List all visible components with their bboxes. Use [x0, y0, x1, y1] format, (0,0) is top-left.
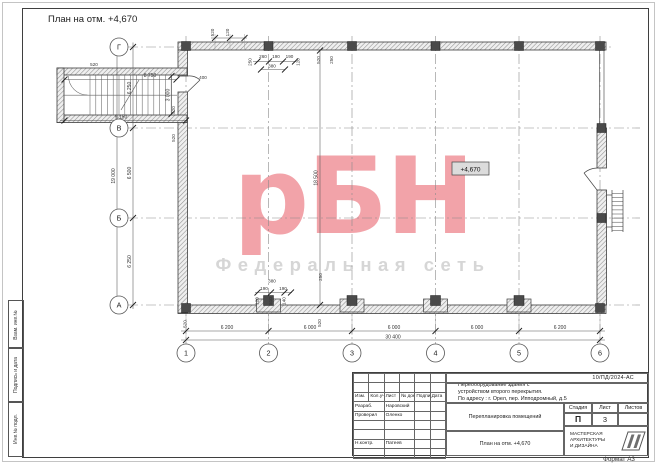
side-field-label: Взам. инв.№	[13, 310, 19, 340]
signer-name: Наровский	[384, 402, 415, 411]
col-list: Лист	[384, 392, 399, 401]
side-field-inv: Инв.№ подл.	[8, 401, 24, 457]
stage-header: Стадия	[564, 403, 592, 413]
drawing-sheet: План на отм. +4,670 рБН Федеральная сеть…	[0, 0, 658, 465]
format-label: Формат А3	[583, 456, 655, 463]
watermark-tagline: Федеральная сеть	[175, 254, 531, 276]
doc-number: 10/ПД/2024-АС	[446, 373, 649, 383]
signer-role: Проверил	[354, 411, 385, 420]
col-koluch: Кол.уч	[369, 392, 384, 401]
company-cell: МАСТЕРСКАЯ АРХИТЕКТУРЫ И ДИЗАЙНА	[564, 426, 649, 456]
watermark-logo: рБН	[175, 146, 531, 248]
sheet-value: 3	[592, 413, 618, 427]
project-description: Переоборудование здания с устройством вт…	[446, 383, 649, 404]
side-field-label: Подпись и дата	[13, 357, 19, 393]
sheets-header: Листов	[618, 403, 649, 413]
drawing-name: План на отм. +4,670	[446, 431, 564, 456]
signer-name: Оленко	[384, 411, 415, 420]
side-field-vzam: Взам. инв.№	[8, 300, 24, 349]
signer-name: Патеев	[384, 439, 415, 448]
signer-role: Н.контр.	[354, 439, 385, 448]
side-field-podpis: Подпись и дата	[8, 347, 24, 403]
watermark: рБН Федеральная сеть	[175, 146, 531, 276]
page-title: План на отм. +4,670	[48, 14, 137, 25]
drawing-subject: Перепланировка помещений	[446, 403, 564, 431]
col-doc: № док.	[399, 392, 414, 401]
col-izm: Изм.	[354, 392, 369, 401]
signer-role: Разраб.	[354, 402, 385, 411]
col-podpis: Подпись	[415, 392, 430, 401]
stage-value: П	[564, 413, 592, 427]
col-data: Дата	[430, 392, 445, 401]
title-block: Изм. Кол.уч Лист № док. Подпись Дата Раз…	[352, 372, 648, 456]
company-name: МАСТЕРСКАЯ АРХИТЕКТУРЫ И ДИЗАЙНА	[565, 432, 614, 451]
signature-table: Изм. Кол.уч Лист № док. Подпись Дата Раз…	[353, 373, 446, 459]
sheet-header: Лист	[592, 403, 618, 413]
sheets-value	[618, 413, 649, 427]
company-logo-icon	[614, 429, 648, 453]
side-field-label: Инв.№ подл.	[13, 414, 19, 444]
